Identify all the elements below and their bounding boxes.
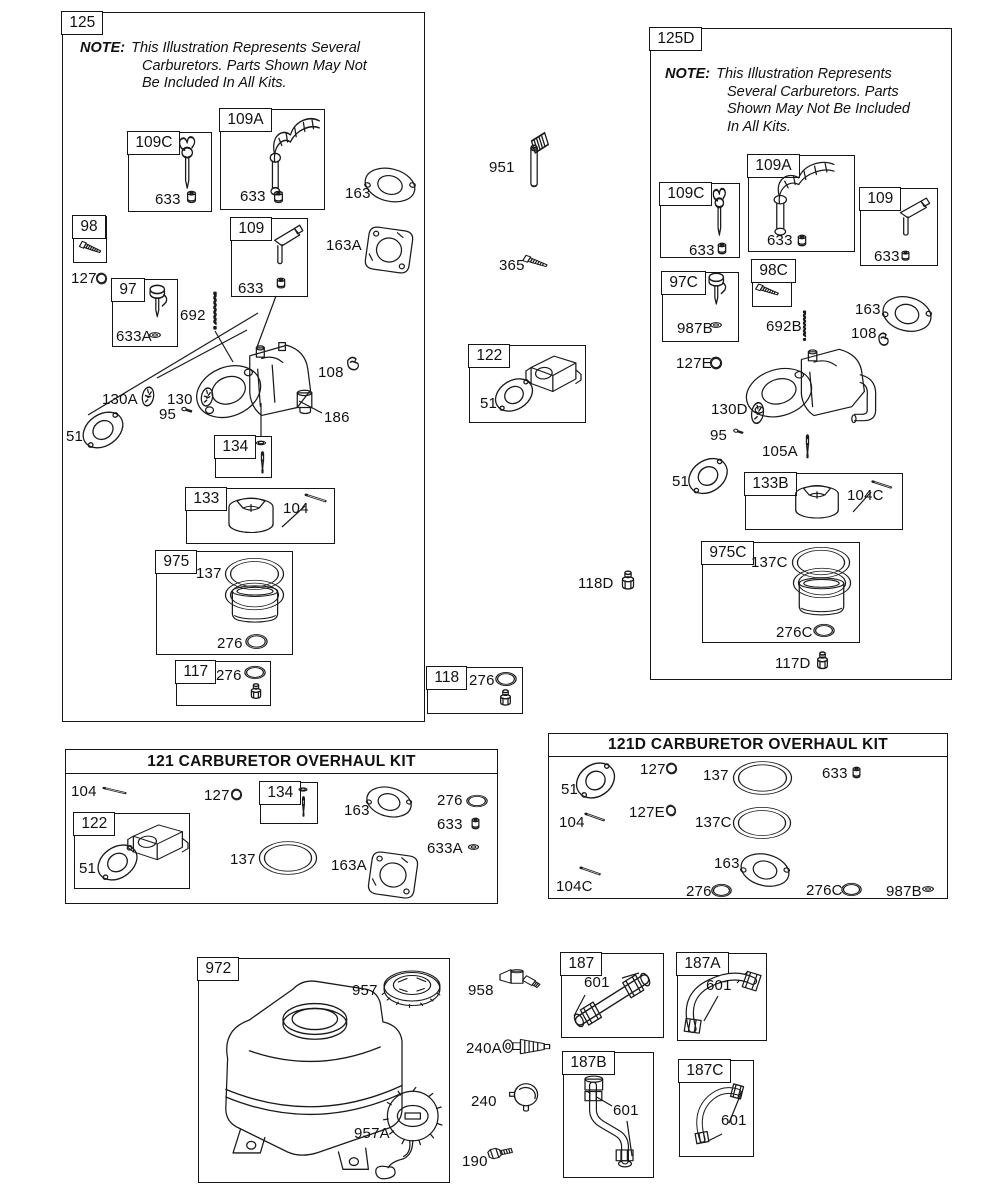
part-number-label: 987B	[886, 884, 922, 899]
part-number-label: 95	[710, 428, 727, 443]
note-prefix: NOTE:	[665, 66, 710, 82]
disc-icon	[746, 398, 769, 428]
part-number-label: 137C	[695, 815, 732, 830]
part-number-label: 692B	[766, 319, 802, 334]
part-number-label: 633	[767, 233, 793, 248]
lever-icon	[881, 195, 935, 247]
kit-title: 121 CARBURETOR OVERHAUL KIT	[66, 750, 497, 774]
oring-icon	[495, 671, 517, 687]
part-number-label: 104	[71, 784, 97, 799]
carb-icon	[193, 328, 325, 434]
note-text: NOTE:This Illustration RepresentsSeveral…	[665, 66, 935, 136]
washer-icon	[466, 841, 481, 853]
float-icon	[789, 479, 845, 526]
part-number-label: 51	[480, 396, 497, 411]
seat-icon	[296, 785, 310, 795]
screwtiny-icon	[732, 426, 745, 437]
part-number-label: 163A	[331, 858, 367, 873]
part-number-label: 957A	[354, 1126, 390, 1141]
part-number-label: 276	[216, 668, 242, 683]
oring-icon	[731, 804, 793, 842]
part-number-label: 117D	[775, 656, 811, 671]
seat-icon	[253, 438, 269, 449]
oring-icon	[731, 758, 794, 798]
note-line: Carburetors. Parts Shown May Not	[80, 58, 390, 76]
part-number-label: 633	[155, 192, 181, 207]
part-number-label: 51	[672, 474, 689, 489]
panel-tag-975: 975	[155, 550, 197, 574]
panel-tag-118: 118	[426, 666, 467, 690]
part-number-label: 601	[613, 1103, 639, 1118]
cap957-icon	[381, 963, 443, 1013]
bushing-icon	[795, 234, 809, 249]
lever-icon	[256, 222, 308, 276]
part-number-label: 633A	[427, 841, 463, 856]
bowl-icon	[793, 576, 850, 625]
part-number-label: 130A	[102, 392, 138, 407]
note-line: Be Included In All Kits.	[80, 75, 390, 93]
part-number-label: 951	[489, 160, 515, 175]
part-number-label: 108	[851, 326, 877, 341]
part-number-label: 276	[437, 793, 463, 808]
part-number-label: 601	[584, 975, 610, 990]
float-icon	[222, 491, 280, 541]
part-number-label: 190	[462, 1154, 488, 1169]
clip-icon	[342, 352, 364, 379]
kit-title: 121D CARBURETOR OVERHAUL KIT	[549, 734, 947, 757]
hoseS-icon	[567, 965, 659, 1033]
gasket2-icon	[361, 223, 417, 277]
part-number-label: 987B	[677, 321, 713, 336]
part-number-label: 104	[283, 501, 309, 516]
part-number-label: 137C	[751, 555, 788, 570]
floatneedle-icon	[168, 134, 208, 196]
part-number-label: 108	[318, 365, 344, 380]
spring-icon	[208, 291, 222, 331]
part-number-label: 633	[240, 189, 266, 204]
part-number-label: 51	[66, 429, 83, 444]
part-number-label: 633	[689, 243, 715, 258]
note-line: In All Kits.	[665, 119, 935, 137]
bolt-icon	[812, 650, 833, 675]
washer-icon	[920, 883, 936, 895]
oring-icon	[244, 665, 266, 680]
part-number-label: 186	[324, 410, 350, 425]
part-number-label: 276	[217, 636, 243, 651]
note-line: This Illustration Represents Several	[131, 40, 360, 56]
oring-icon	[257, 838, 319, 878]
note-prefix: NOTE:	[80, 40, 125, 56]
parts-diagram-canvas: 125109C109A9810997134133975117122118125D…	[0, 0, 1000, 1200]
part-number-label: 163	[714, 856, 740, 871]
part-number-label: 163	[855, 302, 881, 317]
panel-tag-117: 117	[175, 660, 216, 684]
gasket2-icon	[364, 848, 422, 903]
oring-icon	[813, 623, 835, 638]
part-number-label: 365	[499, 258, 525, 273]
panel-tag-134: 134	[214, 435, 256, 459]
bolt-icon	[246, 682, 266, 704]
bushing-icon	[715, 242, 729, 257]
part-number-label: 240A	[466, 1041, 502, 1056]
panel-tag-187b: 187B	[562, 1051, 614, 1075]
part-number-label: 127	[640, 762, 666, 777]
oring-icon	[466, 794, 488, 808]
panel-tag-133: 133	[185, 487, 227, 511]
part-number-label: 127	[71, 271, 97, 286]
panel-tag-125: 125	[61, 11, 103, 35]
bushing-icon	[271, 190, 286, 206]
bolt190-icon	[486, 1140, 518, 1166]
note-line: Several Carburetors. Parts	[665, 84, 935, 102]
part-number-label: 105A	[762, 444, 798, 459]
oring-icon	[711, 883, 732, 898]
part-number-label: 163	[345, 186, 371, 201]
panel-tag-125d: 125D	[649, 27, 702, 51]
part-number-label: 127	[204, 788, 230, 803]
capneedle-icon	[140, 283, 176, 329]
part-number-label: 104	[559, 815, 585, 830]
part-number-label: 601	[706, 978, 732, 993]
floatneedle-icon	[704, 186, 736, 242]
part-number-label: 137	[230, 852, 256, 867]
oring-icon	[245, 633, 268, 650]
bolt-icon	[495, 688, 516, 711]
part-number-label: 104C	[556, 879, 593, 894]
filterA-icon	[501, 1026, 555, 1068]
panel-tag-975c: 975C	[701, 541, 754, 565]
part-number-label: 95	[159, 407, 176, 422]
screw-icon	[520, 250, 552, 274]
bushing-icon	[274, 277, 288, 291]
part-number-label: 633A	[116, 329, 152, 344]
part-number-label: 240	[471, 1094, 497, 1109]
filterR-icon	[506, 1078, 546, 1116]
part-number-label: 276	[686, 884, 712, 899]
part-number-label: 601	[721, 1113, 747, 1128]
part-number-label: 276	[469, 673, 495, 688]
hoseC-icon	[679, 965, 763, 1037]
part-number-label: 633	[874, 249, 900, 264]
needle-icon	[255, 451, 270, 476]
disc-icon	[196, 384, 218, 410]
bushing-icon	[469, 817, 482, 832]
oring-icon	[841, 882, 862, 897]
panel-tag-122: 122	[468, 344, 510, 368]
part-number-label: 127E	[629, 805, 665, 820]
part-number-label: 633	[822, 766, 848, 781]
hoseB-icon	[569, 1073, 649, 1173]
valve958-icon	[495, 964, 545, 1004]
needle-icon	[800, 434, 815, 461]
bolt-icon	[616, 569, 640, 596]
disc-icon	[137, 383, 159, 410]
part-number-label: 130D	[711, 402, 748, 417]
part-number-label: 276C	[806, 883, 843, 898]
part-number-label: 633	[238, 281, 264, 296]
part-number-label: 130	[167, 392, 193, 407]
part-number-label: 163	[344, 803, 370, 818]
note-text: NOTE:This Illustration Represents Severa…	[80, 40, 390, 93]
part-number-label: 276C	[776, 625, 813, 640]
screw-icon	[77, 236, 105, 260]
needle-icon	[297, 796, 310, 819]
part-number-label: 137	[196, 566, 222, 581]
screw-icon	[753, 279, 783, 302]
bushing-icon	[899, 250, 912, 263]
capneedle-icon	[699, 271, 735, 316]
part-number-label: 51	[79, 861, 96, 876]
part-number-label: 633	[437, 817, 463, 832]
bushing-icon	[184, 190, 199, 206]
part-number-label: 957	[352, 983, 378, 998]
part-number-label: 51	[561, 782, 578, 797]
note-line: This Illustration Represents	[716, 66, 892, 82]
part-number-label: 958	[468, 983, 494, 998]
part-number-label: 163A	[326, 238, 362, 253]
bowl-icon	[226, 584, 284, 632]
bushing-icon	[850, 766, 863, 781]
part-number-label: 692	[180, 308, 206, 323]
wirelever-icon	[753, 156, 841, 240]
part-number-label: 137	[703, 768, 729, 783]
wirelever-icon	[253, 112, 325, 200]
part-number-label: 118D	[578, 576, 614, 591]
part-number-label: 104C	[847, 488, 884, 503]
tube951-icon	[512, 130, 557, 194]
note-line: Shown May Not Be Included	[665, 101, 935, 119]
part-number-label: 127E	[676, 356, 712, 371]
